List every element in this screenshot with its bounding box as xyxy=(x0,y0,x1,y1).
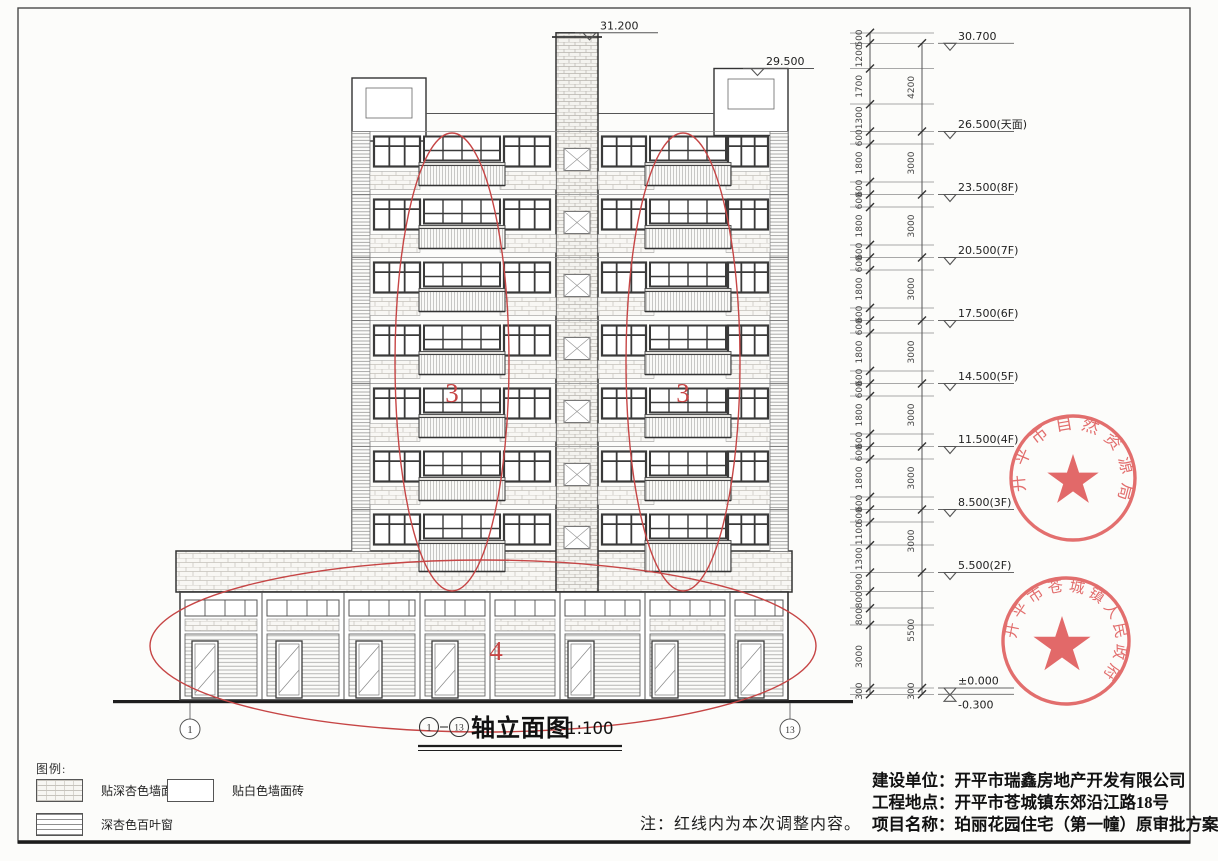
dimension-text: 1100 xyxy=(855,522,865,545)
project-info-label: 项目名称： xyxy=(872,814,955,836)
building-elevation: 11331.20029.500 xyxy=(113,19,853,739)
svg-text:31.200: 31.200 xyxy=(600,19,639,32)
level-label: -0.300 xyxy=(958,698,993,711)
dimension-text: 1300 xyxy=(855,547,865,570)
dimension-text: 3000 xyxy=(907,340,917,363)
revision-number: 4 xyxy=(489,636,503,666)
drawing-sheet: 11331.20029.500 500120017001300600180060… xyxy=(0,0,1218,861)
project-info-value: 开平市苍城镇东郊沿江路18号 xyxy=(955,792,1170,814)
dimension-text: 300 xyxy=(907,682,917,699)
level-label: 26.500(天面) xyxy=(958,118,1027,131)
dimension-text: 600 xyxy=(855,318,865,335)
dimension-text: 5500 xyxy=(907,619,917,642)
project-info-row: 项目名称： 珀丽花园住宅（第一幢）原审批方案 xyxy=(872,814,1218,836)
legend-item-white-tile: 贴白色墙面砖 xyxy=(167,779,304,802)
title-axis-start: 1 xyxy=(426,722,432,734)
svg-text:13: 13 xyxy=(785,726,795,736)
title-scale: 1:100 xyxy=(566,719,614,738)
revision-number: 3 xyxy=(676,378,690,408)
legend-label: 贴白色墙面砖 xyxy=(232,782,304,799)
dimension-column: 5001200170013006001800600600180060060018… xyxy=(850,29,1027,712)
level-label: 11.500(4F) xyxy=(958,433,1018,446)
revision-number: 3 xyxy=(445,378,459,408)
revision-note: 注：红线内为本次调整内容。 xyxy=(640,810,861,834)
legend-swatch-brick xyxy=(36,779,83,802)
legend: 图例: xyxy=(36,760,66,781)
dimension-text: 3000 xyxy=(907,403,917,426)
dimension-text: 3000 xyxy=(907,529,917,552)
dimension-text: 800 xyxy=(855,608,865,625)
dimension-text: 3000 xyxy=(907,214,917,237)
dimension-text: 3000 xyxy=(907,277,917,300)
level-label: 5.500(2F) xyxy=(958,559,1011,572)
dimension-text: 600 xyxy=(855,507,865,524)
dimension-text: 3000 xyxy=(907,466,917,489)
dimension-text: 600 xyxy=(855,192,865,209)
dimension-text: 900 xyxy=(855,573,865,590)
elevation-drawing: 11331.20029.500 500120017001300600180060… xyxy=(0,0,1218,861)
dimension-text: 1800 xyxy=(855,214,865,237)
dimension-text: 1200 xyxy=(855,44,865,67)
dimension-text: 300 xyxy=(855,682,865,699)
dimension-text: 800 xyxy=(855,591,865,608)
level-label: 20.500(7F) xyxy=(958,244,1018,257)
legend-item-dark-apricot-tile: 贴深杏色墙面砖 xyxy=(36,779,185,802)
dimension-text: 3000 xyxy=(907,151,917,174)
level-label: 17.500(6F) xyxy=(958,307,1018,320)
project-info-label: 建设单位： xyxy=(872,770,955,792)
dimension-text: 600 xyxy=(855,444,865,461)
legend-heading: 图例: xyxy=(36,760,66,777)
dimension-text: 600 xyxy=(855,255,865,272)
dimension-text: 4200 xyxy=(907,76,917,99)
dimension-text: 1800 xyxy=(855,151,865,174)
dimension-text: 1800 xyxy=(855,340,865,363)
legend-swatch-louver xyxy=(36,813,83,836)
project-info-value: 开平市瑞鑫房地产开发有限公司 xyxy=(955,770,1186,792)
title-text: 轴立面图 xyxy=(471,714,571,742)
project-info-value: 珀丽花园住宅（第一幢）原审批方案 xyxy=(955,814,1218,836)
dimension-text: 500 xyxy=(855,29,865,46)
legend-swatch-plain xyxy=(167,779,214,802)
project-info: 建设单位： 开平市瑞鑫房地产开发有限公司 工程地点： 开平市苍城镇东郊沿江路18… xyxy=(872,770,1218,836)
legend-item-louver: 深杏色百叶窗 xyxy=(36,813,173,836)
level-label: 30.700 xyxy=(958,30,997,43)
dimension-text: 3000 xyxy=(855,645,865,668)
dimension-text: 600 xyxy=(855,129,865,146)
svg-text:29.500: 29.500 xyxy=(766,55,805,68)
dimension-text: 1800 xyxy=(855,403,865,426)
legend-label: 深杏色百叶窗 xyxy=(101,816,173,833)
level-label: ±0.000 xyxy=(958,675,999,688)
dimension-text: 1700 xyxy=(855,75,865,98)
level-label: 8.500(3F) xyxy=(958,496,1011,509)
project-info-label: 工程地点： xyxy=(872,792,955,814)
svg-text:1: 1 xyxy=(187,724,193,736)
title-axis-end: 13 xyxy=(454,724,464,734)
drawing-title: 113轴立面图1:100 xyxy=(418,714,622,751)
dimension-text: 600 xyxy=(855,381,865,398)
level-label: 14.500(5F) xyxy=(958,370,1018,383)
project-info-row: 建设单位： 开平市瑞鑫房地产开发有限公司 xyxy=(872,770,1218,792)
dimension-text: 1800 xyxy=(855,277,865,300)
dimension-text: 1300 xyxy=(855,106,865,129)
level-label: 23.500(8F) xyxy=(958,181,1018,194)
dimension-text: 1800 xyxy=(855,466,865,489)
project-info-row: 工程地点： 开平市苍城镇东郊沿江路18号 xyxy=(872,792,1218,814)
